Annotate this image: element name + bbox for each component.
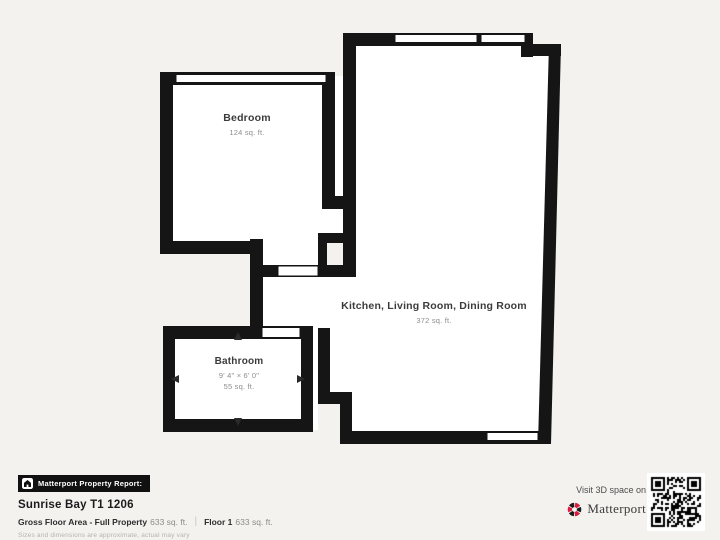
floor-label: Floor 1: [204, 517, 232, 527]
floor-plan-drawing: [0, 0, 720, 540]
bedroom-bottom-wall: [160, 241, 263, 254]
bedroom-door-opening: [278, 266, 318, 276]
report-badge: Matterport Property Report:: [18, 475, 150, 492]
bedroom-right-wall: [322, 72, 335, 204]
property-title: Sunrise Bay T1 1206: [18, 499, 273, 511]
floor-value: 633 sq. ft.: [235, 517, 272, 527]
main-bottom-window: [487, 433, 538, 441]
disclaimer-text: Sizes and dimensions are approximate, ac…: [18, 532, 273, 539]
bedroom-window: [176, 75, 326, 83]
floor-area-line: Gross Floor Area - Full Property 633 sq.…: [18, 516, 273, 527]
main-step-vertical-wall: [340, 392, 352, 444]
info-divider: |: [194, 516, 197, 527]
visit-3d-text: Visit 3D space on: [510, 485, 646, 495]
bedroom-left-wall: [160, 72, 173, 252]
qr-code: [649, 475, 703, 529]
matterport-wordmark: Matterport: [587, 501, 646, 517]
room-fills: [166, 38, 552, 438]
gross-floor-area-label: Gross Floor Area - Full Property: [18, 517, 147, 527]
main-top-window-left: [395, 35, 477, 43]
matterport-brand: Matterport: [510, 501, 646, 517]
closet-left-wall: [318, 233, 327, 277]
bathroom-door-opening: [262, 328, 300, 338]
main-left-upper-wall: [343, 33, 356, 277]
report-info-panel: Matterport Property Report: Sunrise Bay …: [18, 475, 273, 539]
report-badge-label: Matterport Property Report:: [38, 479, 142, 489]
matterport-logo-icon: [567, 502, 582, 517]
visit-3d-promo: Visit 3D space on Matterport: [510, 485, 646, 517]
main-top-window-right: [481, 35, 525, 43]
gross-floor-area-value: 633 sq. ft.: [150, 517, 187, 527]
corridor-left-wall: [250, 239, 263, 339]
qr-code-card: [647, 473, 705, 531]
property-report-page: Bedroom 124 sq. ft. Kitchen, Living Room…: [0, 0, 720, 540]
house-icon: [22, 478, 33, 489]
